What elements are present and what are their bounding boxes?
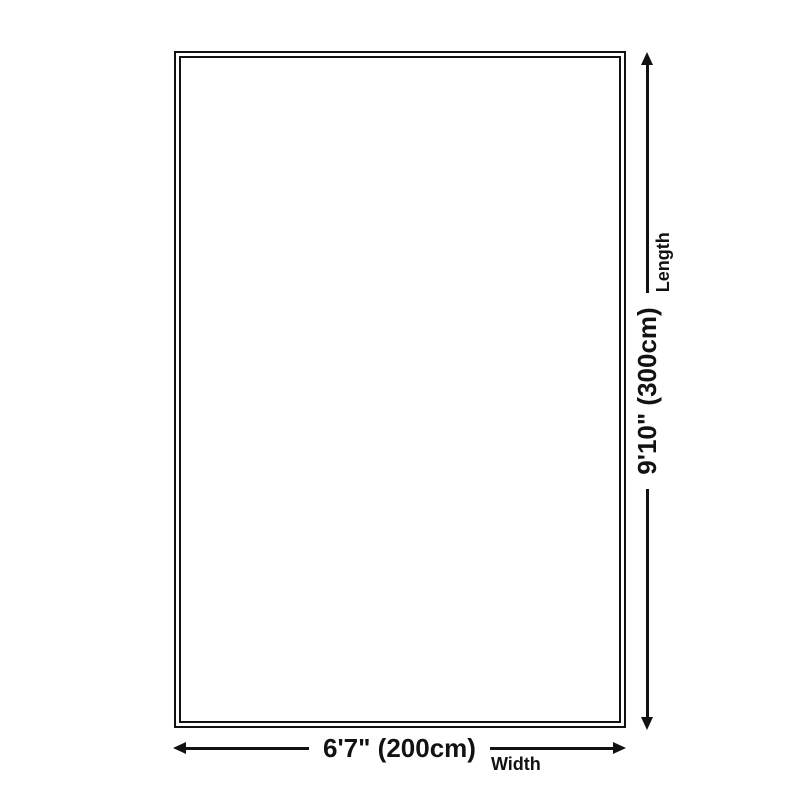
rug-outline-inner-border	[179, 56, 621, 723]
rug-size-diagram: 9'10" (300cm) Length 6'7" (200cm) Width	[0, 0, 800, 800]
width-dimension: 6'7" (200cm) Width	[173, 726, 626, 770]
length-dimension-line-lower	[646, 489, 649, 721]
width-value: 6'7" (200cm)	[309, 735, 490, 761]
length-dimension-line-upper: Length	[646, 61, 649, 293]
width-dimension-line-left	[182, 747, 309, 750]
width-dimension-line-right: Width	[490, 747, 617, 750]
length-dimension: 9'10" (300cm) Length	[625, 52, 669, 730]
length-label: Length	[654, 232, 672, 292]
rug-outline	[174, 51, 626, 728]
width-label: Width	[491, 755, 541, 773]
length-value: 9'10" (300cm)	[634, 293, 660, 488]
